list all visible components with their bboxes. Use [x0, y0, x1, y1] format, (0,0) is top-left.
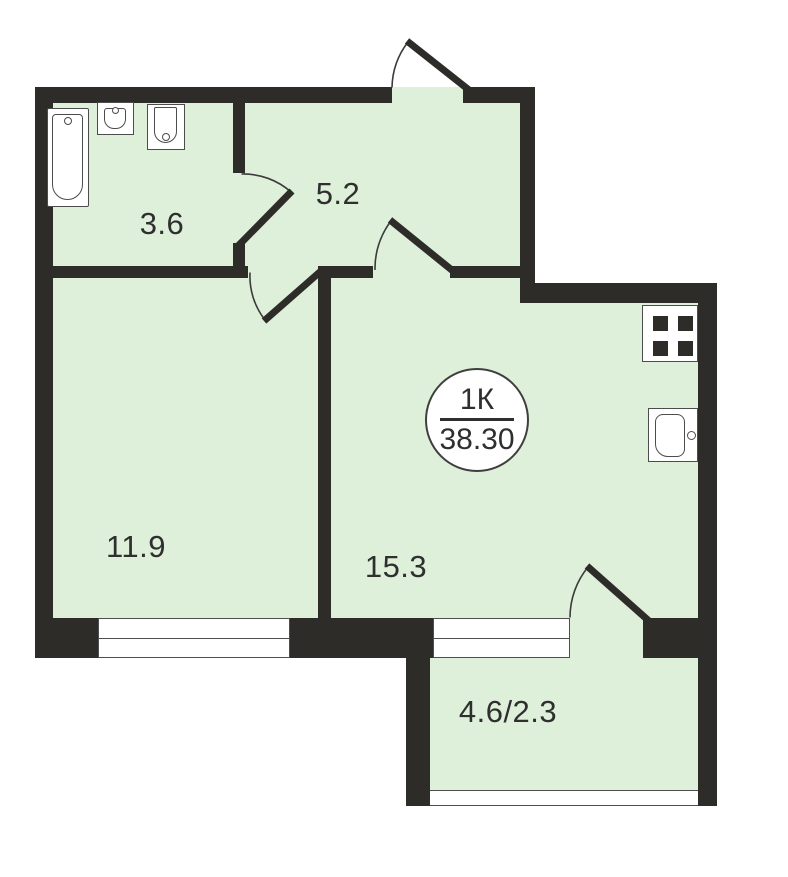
bedroom-area-label: 11.9 — [106, 529, 166, 565]
sink-drain — [112, 107, 119, 114]
kitchen-sink-bowl — [655, 414, 685, 457]
wall-bathroom-right-stub — [233, 243, 245, 278]
entry-door-icon — [392, 41, 469, 90]
wall-hallway-right — [520, 87, 535, 283]
entry-door-leaf — [407, 41, 469, 90]
bedroom-window — [98, 618, 290, 658]
wall-bottom-c — [643, 618, 698, 658]
wall-balcony-left — [406, 618, 430, 806]
wall-hall-living-b — [450, 266, 520, 278]
badge-divider-line — [440, 418, 514, 421]
stove-icon — [642, 305, 698, 362]
floor-living-doorway — [373, 266, 450, 278]
window-mullion — [98, 638, 290, 639]
bathtub-drain — [64, 117, 72, 125]
toilet-drain — [162, 133, 170, 141]
hallway-area-label: 5.2 — [316, 176, 361, 212]
kitchen-sink-icon — [648, 408, 698, 462]
stove-burner — [678, 341, 693, 356]
wall-top-left — [35, 87, 392, 103]
balcony-area-label: 4.6/2.3 — [459, 694, 557, 730]
bathroom-area-label: 3.6 — [140, 206, 185, 242]
wall-bedroom-living-divider — [318, 266, 331, 618]
entry-door-arc — [392, 42, 408, 88]
stove-burner — [653, 316, 668, 331]
floor-bedroom — [53, 278, 318, 618]
wall-bedroom-top — [53, 266, 248, 278]
toilet-icon — [147, 104, 185, 150]
total-area-label: 38.30 — [439, 425, 514, 455]
living-area-label: 15.3 — [365, 549, 427, 585]
floor-bedroom-doorway — [248, 266, 318, 278]
balcony-glazing — [430, 790, 698, 806]
wall-bottom-a — [35, 618, 98, 658]
bathtub-icon — [47, 108, 89, 207]
wall-right — [698, 283, 717, 806]
wall-kitchen-top — [520, 283, 717, 303]
floor-plan: 3.6 5.2 11.9 15.3 4.6/2.3 1К 38.30 — [0, 0, 788, 877]
window-mullion — [433, 638, 570, 639]
floor-balcony-doorway — [570, 618, 643, 658]
stove-burner — [678, 316, 693, 331]
floor-entry-doorway — [392, 87, 463, 103]
floor-bathroom-doorway — [233, 173, 245, 243]
living-room-window — [433, 618, 570, 658]
bathtub-basin — [52, 114, 83, 200]
wall-bathroom-right-upper — [233, 103, 245, 173]
apartment-summary-badge: 1К 38.30 — [425, 368, 529, 472]
kitchen-sink-faucet — [687, 431, 696, 440]
stove-burner — [653, 341, 668, 356]
apartment-type-label: 1К — [460, 385, 494, 415]
bathroom-sink-icon — [97, 102, 134, 135]
